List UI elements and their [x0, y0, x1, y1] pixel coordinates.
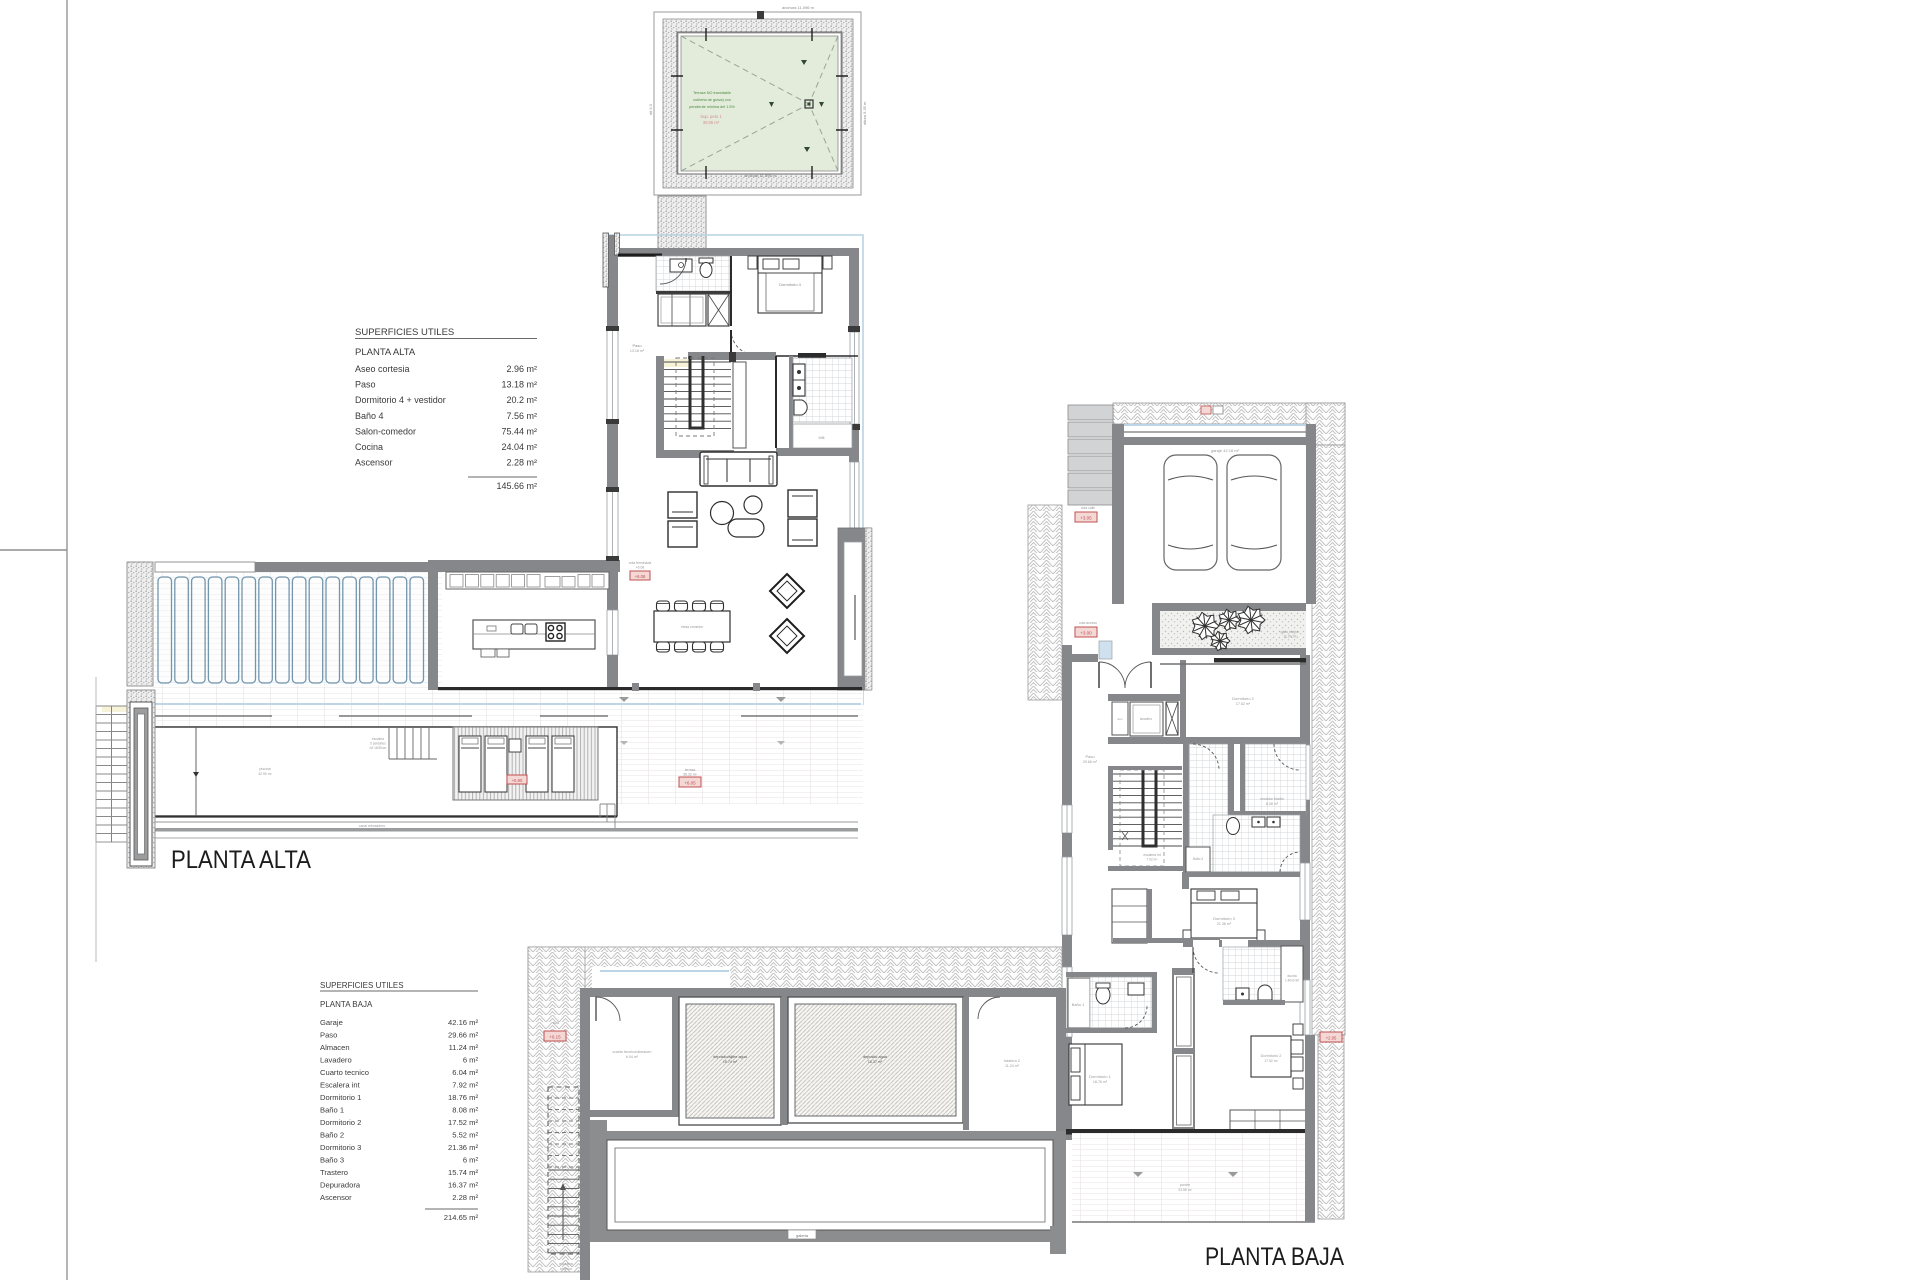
- svg-text:1.40x0.90: 1.40x0.90: [1285, 979, 1299, 983]
- svg-text:8.08 m²: 8.08 m²: [452, 1106, 478, 1115]
- svg-text:11.24 m²: 11.24 m²: [449, 1043, 479, 1052]
- svg-text:Ascensor: Ascensor: [355, 458, 393, 468]
- svg-text:15.74 m²: 15.74 m²: [448, 1168, 478, 1177]
- svg-text:24.04 m²: 24.04 m²: [501, 442, 537, 452]
- svg-text:20.2 m²: 20.2 m²: [506, 395, 537, 405]
- svg-text:cubierta de grava) con: cubierta de grava) con: [693, 98, 731, 102]
- svg-text:42.90 m²: 42.90 m²: [258, 772, 272, 776]
- svg-text:6.04 m²: 6.04 m²: [626, 1055, 639, 1059]
- svg-text:24.55 m²: 24.55 m²: [1178, 1188, 1192, 1192]
- svg-text:29.66 m²: 29.66 m²: [1083, 760, 1098, 764]
- svg-text:7.56 m²: 7.56 m²: [506, 411, 537, 421]
- svg-text:18.76 m²: 18.76 m²: [1093, 1080, 1108, 1084]
- svg-text:patio interior: patio interior: [1281, 630, 1301, 634]
- svg-text:Salon-comedor: Salon-comedor: [355, 426, 416, 436]
- svg-text:mesa comedor: mesa comedor: [681, 625, 704, 629]
- svg-text:Baño 3: Baño 3: [1193, 857, 1203, 861]
- svg-text:Baño 1: Baño 1: [320, 1106, 344, 1115]
- svg-text:PLANTA BAJA: PLANTA BAJA: [1205, 1243, 1344, 1271]
- svg-text:PLANTA ALTA: PLANTA ALTA: [355, 347, 416, 358]
- svg-text:Cocina: Cocina: [355, 442, 383, 452]
- svg-text:145.66 m²: 145.66 m²: [496, 481, 537, 491]
- svg-text:30.65 m²: 30.65 m²: [703, 120, 720, 125]
- svg-text:2.28 m²: 2.28 m²: [452, 1193, 478, 1202]
- svg-text:escalera: escalera: [559, 1262, 573, 1266]
- svg-text:17.52 m²: 17.52 m²: [1236, 702, 1251, 706]
- svg-text:Cuarto tecnico: Cuarto tecnico: [320, 1068, 369, 1077]
- svg-text:escalera: escalera: [372, 737, 384, 741]
- svg-text:trastero 2: trastero 2: [1004, 1059, 1020, 1063]
- svg-text:Paso: Paso: [632, 343, 642, 348]
- svg-text:Dormitorio 2: Dormitorio 2: [1261, 1054, 1282, 1058]
- svg-text:6.04 m²: 6.04 m²: [452, 1068, 478, 1077]
- svg-text:Paso: Paso: [320, 1031, 337, 1040]
- svg-text:escalera int: escalera int: [1143, 853, 1160, 857]
- svg-text:Lavadero: Lavadero: [320, 1056, 352, 1065]
- svg-text:Almacen: Almacen: [320, 1043, 350, 1052]
- svg-text:13.18 m²: 13.18 m²: [501, 380, 537, 390]
- svg-text:21.36 m²: 21.36 m²: [448, 1143, 478, 1152]
- svg-text:PLANTA ALTA: PLANTA ALTA: [171, 846, 311, 874]
- svg-text:+0.15: +0.15: [549, 1035, 561, 1040]
- svg-text:Baño 1: Baño 1: [1072, 1002, 1085, 1007]
- svg-text:Aseo cortesia: Aseo cortesia: [355, 364, 410, 374]
- svg-text:arm: arm: [1117, 717, 1123, 721]
- svg-text:Baño 3: Baño 3: [320, 1156, 344, 1165]
- svg-text:ducha: ducha: [1287, 974, 1296, 978]
- svg-text:+2.95: +2.95: [1326, 1036, 1337, 1041]
- svg-text:+3.05: +3.05: [1080, 516, 1092, 521]
- svg-text:Dormitorio 1: Dormitorio 1: [320, 1093, 361, 1102]
- svg-text:anchura 11.096 m: anchura 11.096 m: [782, 5, 815, 10]
- svg-text:cuarto tecnico/almacen: cuarto tecnico/almacen: [612, 1050, 651, 1054]
- svg-text:cota terminada: cota terminada: [629, 561, 652, 565]
- svg-text:16.37 m²: 16.37 m²: [868, 1060, 883, 1064]
- svg-text:15.74 m²: 15.74 m²: [723, 1060, 738, 1064]
- svg-text:Escalera int: Escalera int: [320, 1081, 361, 1090]
- svg-text:Terraza NO transitable: Terraza NO transitable: [693, 91, 731, 95]
- svg-text:vestidor Martin: vestidor Martin: [1260, 797, 1284, 801]
- svg-text:+6.05: +6.05: [684, 781, 696, 786]
- svg-text:porche: porche: [1180, 1183, 1190, 1187]
- svg-text:PLANTA BAJA: PLANTA BAJA: [320, 1000, 373, 1009]
- svg-text:Trastero: Trastero: [320, 1168, 348, 1177]
- svg-text:cota calle: cota calle: [1081, 506, 1095, 510]
- svg-text:5.52 m²: 5.52 m²: [452, 1131, 478, 1140]
- svg-text:11.24 m²: 11.24 m²: [1283, 635, 1297, 639]
- svg-text:Baño 2: Baño 2: [320, 1131, 344, 1140]
- svg-text:Paso: Paso: [355, 380, 376, 390]
- svg-text:Baño 4: Baño 4: [355, 411, 384, 421]
- svg-text:h/t 16/30cm: h/t 16/30cm: [370, 746, 387, 750]
- svg-text:11.24 m²: 11.24 m²: [1005, 1064, 1020, 1068]
- svg-text:Dormitorio 4: Dormitorio 4: [779, 282, 802, 287]
- svg-text:58.32 m²: 58.32 m²: [683, 773, 697, 777]
- svg-text:deposito/aljibe agua: deposito/aljibe agua: [713, 1055, 748, 1059]
- svg-text:galeria: galeria: [796, 1233, 809, 1238]
- svg-text:75.44 m²: 75.44 m²: [501, 426, 537, 436]
- svg-text:+6.08: +6.08: [636, 566, 645, 570]
- svg-text:garaje 42.16 m²: garaje 42.16 m²: [1211, 448, 1240, 453]
- svg-text:piscina: piscina: [259, 767, 270, 771]
- svg-text:214.65 m²: 214.65 m²: [444, 1213, 479, 1222]
- svg-text:Dormitorio 3: Dormitorio 3: [1213, 916, 1236, 921]
- svg-text:29.66 m²: 29.66 m²: [448, 1031, 478, 1040]
- svg-text:Sup. peto 1: Sup. peto 1: [700, 114, 722, 119]
- svg-text:13.18 m²: 13.18 m²: [630, 349, 645, 353]
- svg-text:cota: cota: [553, 1021, 560, 1025]
- svg-text:18.76 m²: 18.76 m²: [448, 1093, 478, 1102]
- svg-text:Dormitorio 4 + vestidor: Dormitorio 4 + vestidor: [355, 395, 446, 405]
- svg-text:7.92 m²: 7.92 m²: [1147, 858, 1158, 862]
- svg-text:Dormitorio 2: Dormitorio 2: [320, 1118, 361, 1127]
- svg-text:lavadero: lavadero: [1140, 717, 1152, 721]
- svg-text:Dormitorio 2: Dormitorio 2: [1232, 696, 1255, 701]
- svg-text:pendiente minima del 1.5%: pendiente minima del 1.5%: [689, 105, 735, 109]
- svg-text:17.52 m²: 17.52 m²: [1264, 1059, 1278, 1063]
- svg-text:6 m²: 6 m²: [463, 1156, 479, 1165]
- svg-text:42.16 m²: 42.16 m²: [448, 1018, 478, 1027]
- svg-text:6 m²: 6 m²: [463, 1056, 479, 1065]
- svg-text:+3.00: +3.00: [1080, 631, 1092, 636]
- svg-text:deposito agua: deposito agua: [863, 1055, 888, 1059]
- svg-text:2.96 m²: 2.96 m²: [506, 364, 537, 374]
- svg-text:+6.08: +6.08: [635, 574, 646, 579]
- svg-text:2.28 m²: 2.28 m²: [506, 458, 537, 468]
- svg-text:anchura 11.096 m: anchura 11.096 m: [744, 173, 777, 178]
- svg-text:+5.90: +5.90: [512, 778, 523, 783]
- svg-text:Dormitorio 3: Dormitorio 3: [320, 1143, 361, 1152]
- svg-text:Ascensor: Ascensor: [320, 1193, 352, 1202]
- svg-text:16.37 m²: 16.37 m²: [448, 1181, 478, 1190]
- svg-text:cota acceso: cota acceso: [1079, 621, 1097, 625]
- svg-text:Paso: Paso: [1085, 754, 1095, 759]
- svg-text:Depuradora: Depuradora: [320, 1181, 361, 1190]
- svg-text:exterior: exterior: [560, 1267, 573, 1271]
- svg-text:terraza: terraza: [685, 768, 696, 772]
- svg-text:Dormitorio 1: Dormitorio 1: [1089, 1074, 1112, 1079]
- svg-text:canal rebosadero: canal rebosadero: [359, 824, 385, 828]
- svg-text:altura 9.35 m: altura 9.35 m: [862, 101, 867, 125]
- svg-text:SUPERFICIES UTILES: SUPERFICIES UTILES: [320, 981, 404, 990]
- svg-text:SUPERFICIES UTILES: SUPERFICIES UTILES: [355, 327, 454, 338]
- svg-text:7.92 m²: 7.92 m²: [452, 1081, 478, 1090]
- svg-text:alt 9.3: alt 9.3: [648, 103, 653, 115]
- svg-text:17.52 m²: 17.52 m²: [448, 1118, 478, 1127]
- svg-text:5 peldaños: 5 peldaños: [370, 742, 386, 746]
- svg-text:8.08 m²: 8.08 m²: [1266, 802, 1279, 806]
- svg-text:Mill.: Mill.: [818, 435, 825, 440]
- svg-text:21.36 m²: 21.36 m²: [1217, 922, 1232, 926]
- svg-text:Garaje: Garaje: [320, 1018, 343, 1027]
